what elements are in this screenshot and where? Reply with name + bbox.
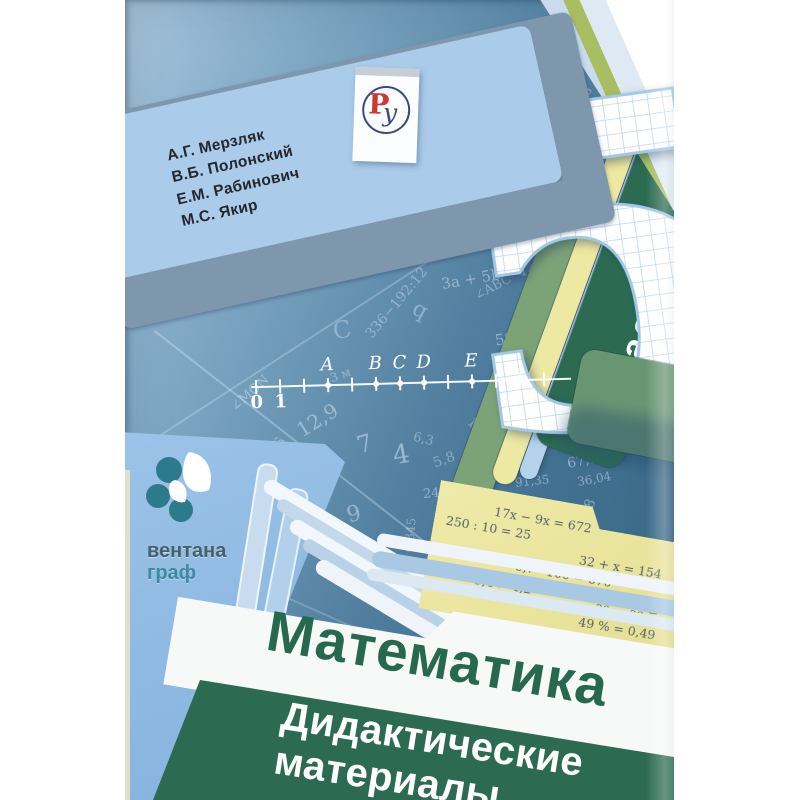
background-math-number: 7 bbox=[353, 428, 375, 459]
publisher-name-graf: граф bbox=[147, 562, 196, 585]
number-line-point-dot bbox=[420, 380, 426, 386]
background-math-number: 4 bbox=[391, 439, 413, 471]
number-line-rail bbox=[251, 378, 571, 388]
number-line-tick bbox=[543, 372, 545, 386]
ventana-graf-logo bbox=[145, 446, 237, 543]
background-math-number: 6,3 bbox=[411, 430, 435, 450]
page-block-edge bbox=[125, 470, 130, 800]
number-line-origin-label: 0 bbox=[250, 392, 263, 413]
number-line: 01ABCDE bbox=[244, 348, 575, 413]
number-line-tick bbox=[447, 375, 449, 389]
ru-imprint-banner: Р у bbox=[352, 67, 419, 163]
number-line-point-label: B bbox=[368, 353, 382, 374]
cover-edge-highlight bbox=[646, 0, 674, 800]
background-math-number: 36,04 bbox=[576, 469, 612, 489]
number-line-origin-label: 1 bbox=[274, 391, 287, 412]
background-math-number: 5,8 bbox=[431, 449, 457, 472]
number-line-point-label: E bbox=[464, 350, 478, 371]
number-line-point-dot bbox=[325, 382, 331, 388]
number-line-tick bbox=[351, 378, 353, 392]
book-cover: 67,863,78,835D62,9231456179,3529189,3145… bbox=[125, 0, 674, 800]
banner-fold bbox=[355, 67, 419, 77]
number-line-point-label: A bbox=[320, 354, 334, 375]
number-line-point-dot bbox=[468, 378, 474, 384]
background-math-number: C bbox=[330, 314, 354, 345]
number-line-point-label: C bbox=[392, 352, 406, 373]
background-math-number: q bbox=[408, 296, 432, 325]
number-line-point-dot bbox=[373, 381, 379, 387]
book-cover-photo: 67,863,78,835D62,9231456179,3529189,3145… bbox=[0, 0, 800, 800]
publisher-name-ventana: вентана bbox=[147, 540, 226, 563]
number-line-point-label: D bbox=[416, 351, 431, 372]
ru-logo-letter-u: у bbox=[383, 98, 399, 127]
number-line-tick bbox=[495, 374, 497, 388]
number-line-tick bbox=[303, 379, 305, 393]
number-line-tick bbox=[519, 373, 521, 387]
number-line-point-dot bbox=[397, 380, 403, 386]
